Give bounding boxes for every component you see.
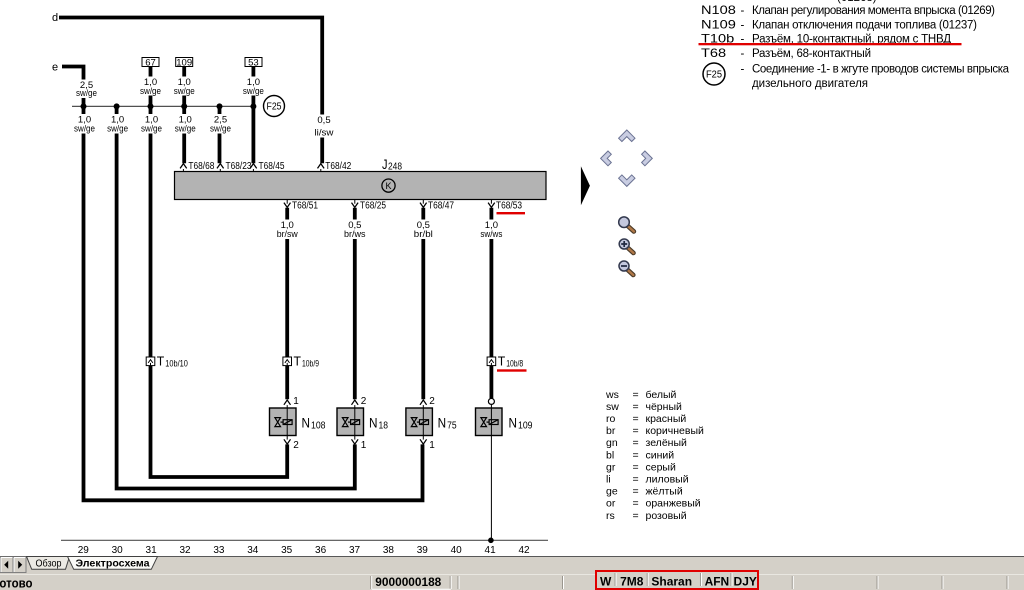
svg-text:sw/ge: sw/ge [140,86,161,97]
svg-text:sw/ge: sw/ge [210,124,231,135]
svg-text:-: - [741,19,745,31]
svg-text:Разъём, 68-контактный: Разъём, 68-контактный [752,48,871,60]
svg-text:T: T [498,353,506,368]
svg-text:розовый: розовый [646,510,687,522]
svg-text:sw/ge: sw/ge [76,88,97,99]
svg-text:br/bl: br/bl [414,229,433,240]
svg-text:sw/ws: sw/ws [480,229,502,240]
svg-text:br/ws: br/ws [344,229,366,240]
svg-text:Обзор: Обзор [36,557,62,569]
svg-text:34: 34 [247,545,259,556]
svg-text:e: e [52,62,58,74]
svg-text:-: - [741,5,745,17]
svg-text:=: = [633,389,639,401]
svg-text:=: = [633,461,639,473]
svg-text:d: d [52,12,58,24]
svg-text:sw/ge: sw/ge [243,86,264,97]
svg-text:оранжевый: оранжевый [646,498,701,510]
svg-text:9000000188: 9000000188 [375,574,441,588]
svg-text:ge: ge [606,486,618,498]
svg-text:53: 53 [248,57,259,68]
svg-text:=: = [633,510,639,522]
svg-text:248: 248 [388,162,402,173]
svg-text:29: 29 [78,545,90,556]
svg-text:42: 42 [518,545,530,556]
svg-text:лиловый: лиловый [646,474,689,486]
svg-text:31: 31 [146,545,158,556]
svg-text:36: 36 [315,545,327,556]
svg-text:F25: F25 [706,70,722,81]
svg-text:=: = [633,401,639,413]
svg-text:T68/47: T68/47 [428,201,454,212]
svg-text:39: 39 [417,545,429,556]
svg-text:rs: rs [606,510,615,522]
svg-text:N: N [369,415,378,431]
svg-text:коричневый: коричневый [646,425,704,437]
svg-text:li: li [606,474,611,486]
svg-text:серый: серый [646,461,676,473]
svg-text:2: 2 [429,396,435,407]
svg-text:=: = [633,486,639,498]
svg-text:=: = [633,474,639,486]
svg-text:1: 1 [293,396,299,407]
svg-text:T68/45: T68/45 [259,161,285,172]
svg-text:sw/ge: sw/ge [175,124,196,135]
svg-text:N: N [438,415,447,431]
svg-text:7M8: 7M8 [620,574,644,587]
svg-text:1: 1 [361,440,367,451]
svg-text:T68/51: T68/51 [292,201,318,212]
svg-text:2: 2 [361,396,367,407]
svg-text:T68/25: T68/25 [360,201,386,212]
svg-text:Sharan: Sharan [651,574,692,587]
svg-text:gn: gn [606,437,618,449]
svg-text:N109: N109 [701,18,736,31]
svg-text:K: K [385,181,391,191]
svg-text:T68/53: T68/53 [496,201,522,212]
svg-text:br: br [606,425,616,437]
svg-text:75: 75 [447,421,457,432]
svg-text:Клапан отключения подачи топли: Клапан отключения подачи топлива (01237) [752,19,977,31]
svg-text:108: 108 [311,421,326,432]
svg-text:40: 40 [451,545,463,556]
svg-text:AFN: AFN [705,574,730,587]
svg-text:10b/10: 10b/10 [165,358,188,368]
svg-text:sw/ge: sw/ge [174,86,195,97]
svg-text:bl: bl [606,449,614,461]
svg-text:sw/ge: sw/ge [141,124,162,135]
svg-text:W: W [600,574,612,587]
svg-text:18: 18 [379,421,389,432]
svg-text:1: 1 [429,440,435,451]
svg-text:(01268): (01268) [837,0,877,4]
svg-text:-: - [741,64,745,76]
svg-text:br/sw: br/sw [277,229,298,240]
svg-text:35: 35 [281,545,293,556]
svg-text:37: 37 [349,545,361,556]
svg-text:красный: красный [646,413,687,425]
svg-text:T68/23: T68/23 [226,161,252,172]
svg-text:N108: N108 [701,4,736,17]
svg-text:=: = [633,449,639,461]
svg-text:T68: T68 [701,46,726,59]
svg-text:=: = [633,413,639,425]
svg-text:gr: gr [606,461,616,473]
svg-text:Соединение -1- в жгуте проводо: Соединение -1- в жгуте проводов системы … [752,64,1010,76]
svg-text:sw: sw [606,401,619,413]
svg-text:67: 67 [145,57,156,68]
svg-text:li/sw: li/sw [315,128,334,139]
svg-text:10b/9: 10b/9 [302,358,319,368]
svg-text:T68/42: T68/42 [325,161,351,172]
svg-text:30: 30 [112,545,124,556]
svg-text:33: 33 [213,545,225,556]
svg-text:T68/68: T68/68 [188,161,214,172]
svg-text:109: 109 [518,421,533,432]
svg-text:=: = [633,498,639,510]
svg-text:N: N [509,415,518,431]
svg-text:T: T [157,353,165,368]
svg-text:sw/ge: sw/ge [107,124,128,135]
svg-text:Готово: Готово [0,575,33,590]
svg-text:чёрный: чёрный [646,401,682,413]
svg-text:sw/ge: sw/ge [74,124,95,135]
svg-text:2: 2 [293,440,299,451]
svg-text:дизельного двигателя: дизельного двигателя [752,78,868,90]
svg-text:32: 32 [179,545,191,556]
svg-text:ro: ro [606,413,615,425]
svg-text:=: = [633,437,639,449]
svg-text:N: N [302,415,311,431]
svg-text:жёлтый: жёлтый [646,486,683,498]
svg-text:синий: синий [646,449,675,461]
svg-text:10b/8: 10b/8 [506,358,523,368]
svg-text:DJY: DJY [734,574,757,587]
svg-text:=: = [633,425,639,437]
svg-text:белый: белый [646,389,677,401]
svg-text:109: 109 [176,57,192,68]
svg-text:or: or [606,498,616,510]
svg-text:41: 41 [485,545,497,556]
svg-text:-: - [741,48,745,60]
svg-text:F25: F25 [267,102,282,113]
svg-text:Электросхема: Электросхема [76,557,150,569]
svg-text:38: 38 [383,545,395,556]
svg-text:J: J [382,156,388,172]
svg-text:Клапан регулирования момента в: Клапан регулирования момента впрыска (01… [752,5,995,17]
svg-text:T: T [294,353,302,368]
svg-text:зелёный: зелёный [646,437,687,449]
svg-text:0,5: 0,5 [317,115,330,126]
svg-text:ws: ws [605,389,619,401]
